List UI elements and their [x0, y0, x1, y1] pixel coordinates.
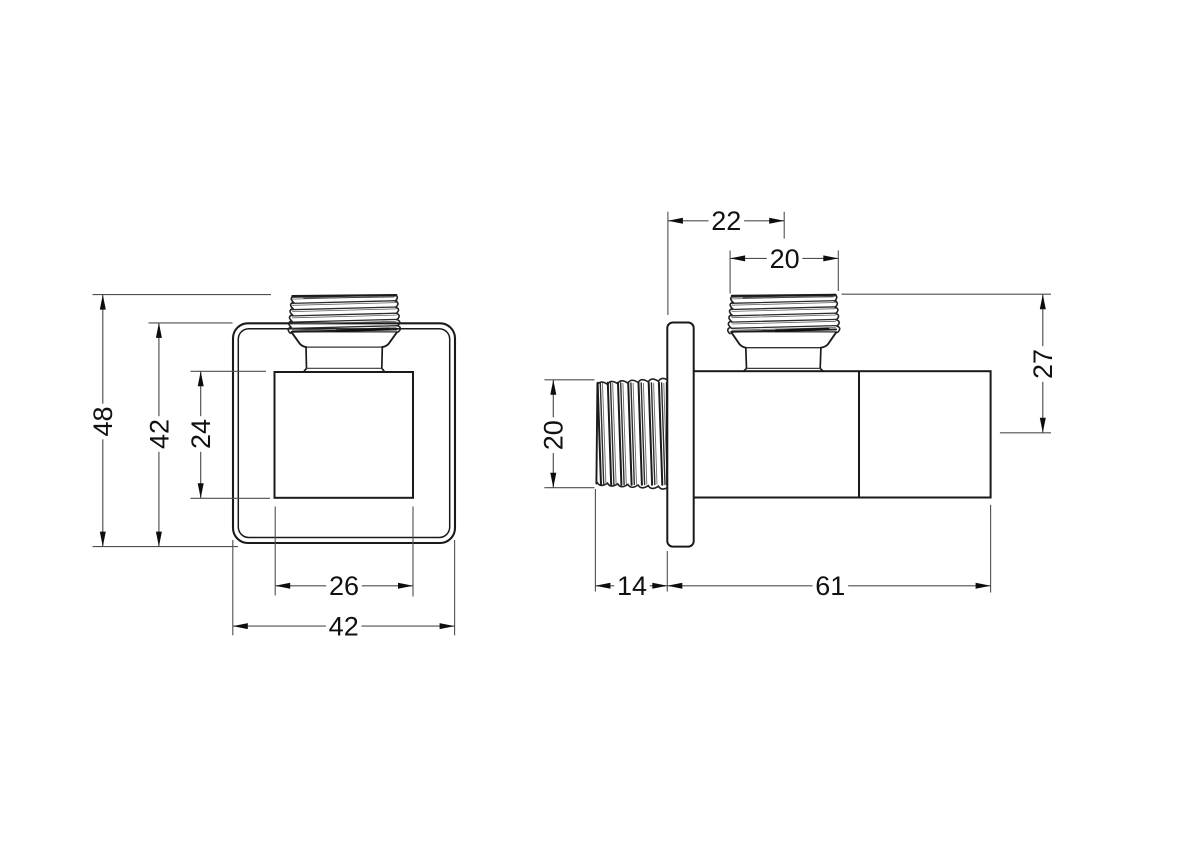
- svg-text:42: 42: [144, 419, 174, 449]
- svg-text:26: 26: [329, 571, 359, 601]
- svg-text:27: 27: [1028, 349, 1058, 379]
- svg-text:22: 22: [711, 206, 741, 236]
- svg-text:24: 24: [186, 419, 216, 449]
- svg-text:14: 14: [617, 571, 647, 601]
- svg-text:61: 61: [815, 571, 845, 601]
- svg-text:42: 42: [329, 612, 359, 642]
- svg-text:20: 20: [770, 244, 800, 274]
- svg-text:20: 20: [539, 420, 569, 450]
- svg-text:48: 48: [88, 406, 118, 436]
